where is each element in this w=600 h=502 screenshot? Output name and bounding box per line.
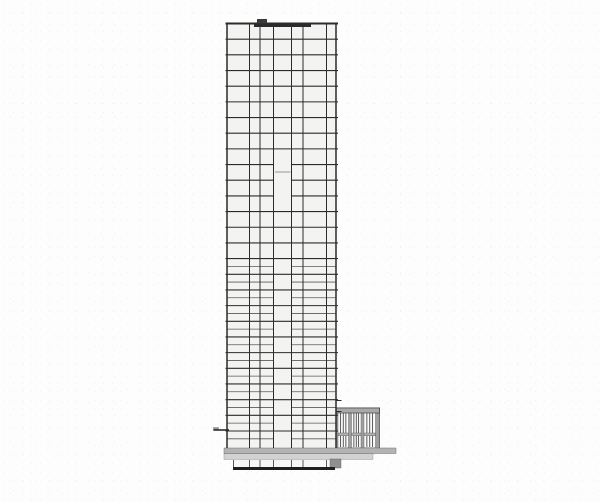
tower-section [227,24,336,468]
podium-transom [338,433,376,436]
tower-section-drawing [0,0,600,502]
basement-wall-block [330,459,341,468]
ground-slab-step [224,454,373,460]
roof-bulkhead [257,19,267,24]
podium-parapet-cap [336,408,380,413]
architectural-drawing [0,0,600,502]
ground-slab [224,448,396,460]
podium-pier [361,408,364,448]
podium-pier [349,408,352,448]
podium-annex [336,401,380,449]
podium-pier [376,408,380,448]
foundation-bar [233,467,335,470]
ground-slab-band [224,448,396,454]
roof-mechanical-band [254,24,311,28]
